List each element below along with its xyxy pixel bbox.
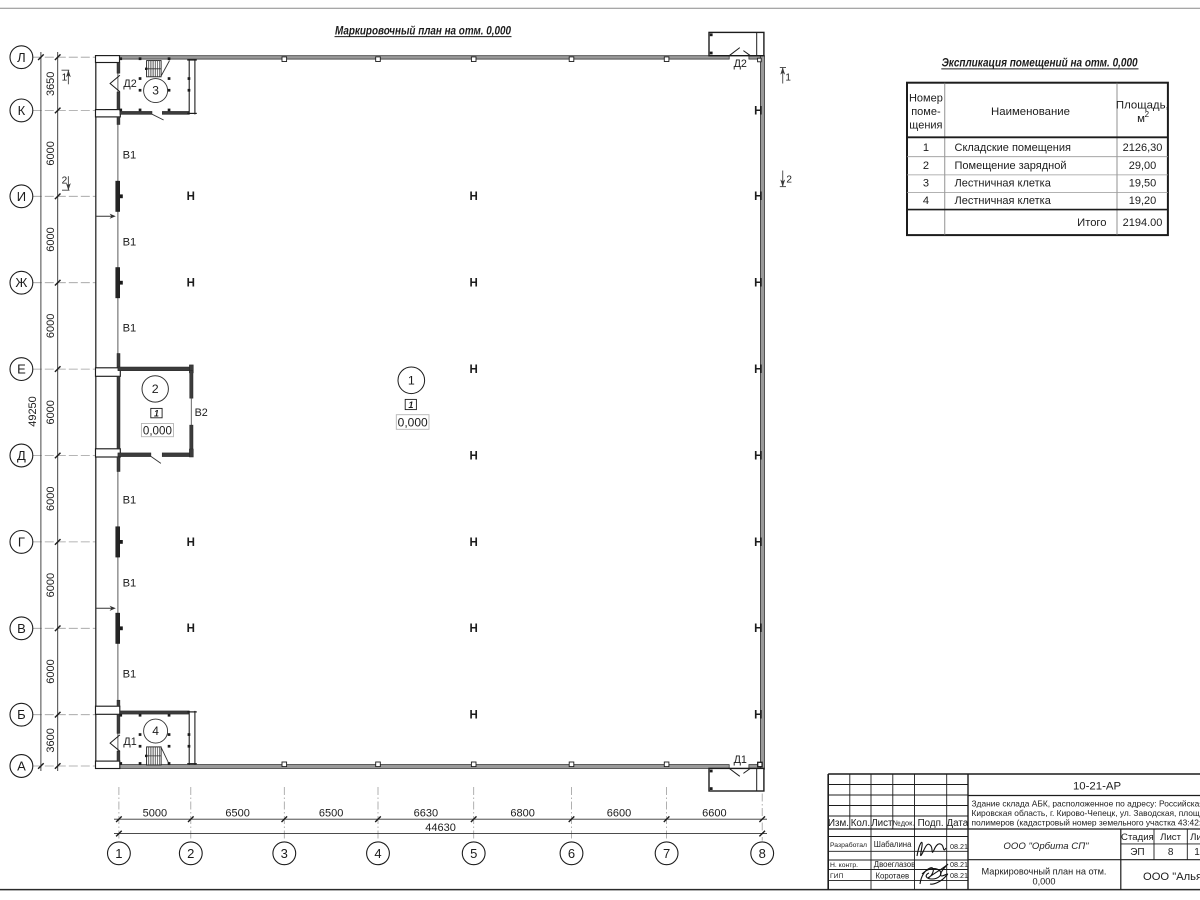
svg-text:10-21-АР: 10-21-АР: [1073, 781, 1121, 793]
svg-text:Н: Н: [754, 191, 762, 203]
svg-text:29,00: 29,00: [1129, 160, 1157, 172]
svg-text:Складские помещения: Складские помещения: [955, 142, 1071, 154]
svg-text:Е: Е: [17, 362, 26, 377]
svg-text:6000: 6000: [45, 400, 57, 424]
svg-text:44630: 44630: [425, 822, 456, 834]
svg-text:6500: 6500: [225, 807, 249, 819]
svg-text:6000: 6000: [45, 141, 57, 165]
svg-text:2: 2: [187, 846, 194, 861]
svg-text:1: 1: [923, 142, 929, 154]
svg-text:ГИП: ГИП: [830, 873, 844, 880]
svg-text:6630: 6630: [414, 807, 438, 819]
svg-text:6000: 6000: [45, 486, 57, 510]
svg-text:Д1: Д1: [123, 736, 136, 748]
svg-text:4: 4: [374, 846, 381, 861]
svg-text:Маркировочный план на отм.: Маркировочный план на отм.: [982, 867, 1107, 877]
svg-text:В1: В1: [123, 495, 137, 507]
svg-text:Л: Л: [17, 50, 26, 65]
svg-text:№док.: №док.: [893, 819, 915, 828]
svg-text:Н: Н: [470, 364, 478, 376]
svg-text:3: 3: [281, 846, 288, 861]
svg-text:Экспликация помещений на отм.: Экспликация помещений на отм. 0,000: [942, 55, 1138, 69]
svg-text:4: 4: [152, 724, 159, 738]
svg-text:4: 4: [923, 195, 929, 207]
svg-text:Номер: Номер: [909, 93, 943, 105]
svg-text:Д: Д: [17, 448, 26, 463]
svg-text:Н: Н: [187, 191, 195, 203]
svg-text:3: 3: [152, 84, 159, 98]
svg-text:Д2: Д2: [123, 78, 136, 90]
svg-text:Лист: Лист: [871, 818, 893, 829]
svg-text:2: 2: [786, 174, 792, 185]
svg-text:Дата: Дата: [947, 818, 969, 829]
svg-text:Д2: Д2: [734, 58, 747, 70]
svg-text:2: 2: [923, 160, 929, 172]
svg-text:Лестничная клетка: Лестничная клетка: [955, 177, 1052, 189]
svg-text:Здание склада АБК, расположенн: Здание склада АБК, расположенное по адре…: [972, 799, 1200, 809]
svg-text:Д1: Д1: [734, 754, 747, 766]
svg-text:1: 1: [408, 400, 413, 410]
svg-text:08.21: 08.21: [950, 871, 968, 880]
svg-text:Н: Н: [470, 450, 478, 462]
svg-text:3: 3: [923, 177, 929, 189]
svg-text:В1: В1: [123, 669, 137, 681]
svg-text:Наименование: Наименование: [991, 106, 1070, 118]
svg-text:Лист: Лист: [1160, 832, 1181, 843]
svg-text:Н: Н: [187, 537, 195, 549]
svg-text:Н: Н: [754, 105, 762, 117]
svg-text:6000: 6000: [45, 227, 57, 251]
svg-text:К: К: [18, 103, 26, 118]
svg-text:Ж: Ж: [15, 275, 27, 290]
svg-text:6000: 6000: [45, 659, 57, 683]
svg-text:0,000: 0,000: [143, 424, 172, 437]
svg-text:В1: В1: [123, 578, 137, 590]
svg-text:Н: Н: [470, 623, 478, 635]
svg-text:Площадь,: Площадь,: [1116, 100, 1169, 112]
svg-text:6800: 6800: [510, 807, 534, 819]
svg-text:2: 2: [1145, 110, 1150, 119]
svg-text:Н: Н: [754, 450, 762, 462]
svg-text:5000: 5000: [143, 807, 167, 819]
svg-text:Н: Н: [470, 278, 478, 290]
svg-text:2126,30: 2126,30: [1123, 142, 1163, 154]
svg-text:полимеров (кадастровый номер з: полимеров (кадастровый номер земельного …: [972, 818, 1200, 828]
svg-text:Двоеглазов: Двоеглазов: [874, 860, 915, 869]
svg-text:49250: 49250: [27, 396, 39, 427]
svg-text:Н: Н: [754, 364, 762, 376]
svg-text:Маркировочный план на отм. 0,0: Маркировочный план на отм. 0,000: [335, 24, 511, 38]
svg-text:Коротаев: Коротаев: [876, 871, 910, 880]
svg-text:Н: Н: [754, 623, 762, 635]
svg-text:А: А: [17, 759, 26, 774]
svg-text:2: 2: [62, 175, 68, 186]
svg-text:6600: 6600: [607, 807, 631, 819]
svg-text:1: 1: [785, 73, 791, 84]
svg-text:6000: 6000: [45, 573, 57, 597]
svg-text:2: 2: [152, 382, 159, 396]
svg-text:0,000: 0,000: [398, 415, 428, 429]
svg-text:Кол.: Кол.: [851, 818, 870, 829]
svg-text:ООО "Альянс: ООО "Альянс: [1143, 871, 1200, 883]
svg-text:6000: 6000: [45, 314, 57, 338]
svg-text:В1: В1: [123, 149, 137, 161]
svg-text:Г: Г: [18, 534, 25, 549]
svg-text:1: 1: [408, 374, 415, 388]
svg-text:6600: 6600: [702, 807, 726, 819]
svg-text:Н. контр.: Н. контр.: [830, 862, 858, 869]
svg-text:8: 8: [759, 846, 766, 861]
svg-text:Н: Н: [470, 537, 478, 549]
svg-text:Н: Н: [754, 537, 762, 549]
svg-text:Н: Н: [470, 191, 478, 203]
svg-text:19,50: 19,50: [1129, 177, 1157, 189]
svg-text:Помещение зарядной: Помещение зарядной: [955, 160, 1067, 172]
svg-text:щения: щения: [909, 120, 942, 132]
svg-text:ЭП: ЭП: [1130, 847, 1144, 858]
svg-text:В: В: [17, 621, 26, 636]
svg-text:5: 5: [470, 846, 477, 861]
svg-text:поме-: поме-: [911, 106, 941, 118]
svg-text:Н: Н: [187, 278, 195, 290]
svg-text:Шабалина: Шабалина: [874, 840, 912, 849]
svg-text:0,000: 0,000: [1033, 877, 1056, 887]
svg-text:ООО "Орбита СП": ООО "Орбита СП": [1003, 841, 1089, 852]
svg-text:Лестничная клетка: Лестничная клетка: [955, 195, 1052, 207]
svg-text:6: 6: [568, 846, 575, 861]
svg-text:1: 1: [115, 846, 122, 861]
svg-text:3600: 3600: [45, 728, 57, 752]
svg-text:Подп.: Подп.: [918, 818, 944, 829]
svg-text:Б: Б: [17, 707, 26, 722]
svg-text:1: 1: [62, 72, 68, 83]
svg-text:1: 1: [154, 408, 159, 418]
svg-text:В2: В2: [195, 407, 208, 419]
svg-text:Н: Н: [470, 710, 478, 722]
svg-text:И: И: [17, 189, 26, 204]
svg-text:Разработал: Разработал: [830, 841, 867, 849]
svg-text:8: 8: [1168, 847, 1174, 858]
svg-text:7: 7: [663, 846, 670, 861]
svg-text:08.21: 08.21: [950, 842, 968, 851]
svg-text:19,20: 19,20: [1129, 195, 1157, 207]
svg-text:3650: 3650: [45, 72, 57, 96]
svg-text:08.21: 08.21: [950, 860, 968, 869]
svg-text:Н: Н: [754, 710, 762, 722]
svg-text:Итого: Итого: [1077, 217, 1106, 229]
svg-text:1: 1: [1194, 847, 1200, 858]
svg-text:6500: 6500: [319, 807, 343, 819]
svg-text:Н: Н: [754, 278, 762, 290]
svg-text:В1: В1: [123, 237, 137, 249]
svg-text:Н: Н: [187, 623, 195, 635]
svg-text:В1: В1: [123, 323, 137, 335]
svg-text:Изм.: Изм.: [828, 818, 849, 829]
svg-text:2194.00: 2194.00: [1123, 217, 1163, 229]
svg-text:Ли: Ли: [1190, 832, 1200, 843]
svg-text:Стадия: Стадия: [1121, 832, 1154, 843]
svg-text:Кировская область, г. Кирово-Ч: Кировская область, г. Кирово-Чепецк, ул.…: [972, 808, 1200, 818]
